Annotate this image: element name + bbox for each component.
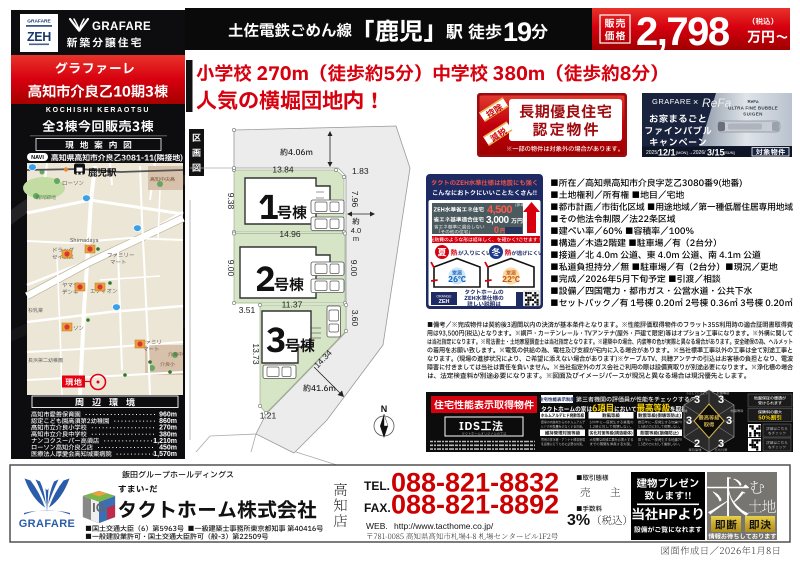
svg-text:1,570m: 1,570m xyxy=(153,451,177,458)
svg-text:[SUN]: [SUN] xyxy=(724,150,735,155)
svg-text:14.96: 14.96 xyxy=(279,229,301,239)
svg-text:IG: IG xyxy=(92,500,106,515)
svg-text:GRAFARE: GRAFARE xyxy=(27,19,51,25)
svg-text:http://www.tacthome.co.jp/: http://www.tacthome.co.jp/ xyxy=(394,521,494,531)
svg-text:9.00: 9.00 xyxy=(226,260,236,277)
svg-text:13.84: 13.84 xyxy=(272,165,294,175)
svg-text:13.73: 13.73 xyxy=(251,343,261,365)
svg-text:NAVI: NAVI xyxy=(31,155,44,161)
svg-text:KOCHISHI KERAOTSU: KOCHISHI KERAOTSU xyxy=(46,107,150,114)
svg-text:WEB.: WEB. xyxy=(366,521,388,531)
svg-text:3: 3 xyxy=(694,394,700,406)
svg-text:GRAFARE: GRAFARE xyxy=(92,21,151,33)
svg-text:ReFa: ReFa xyxy=(747,99,759,104)
svg-text:11.37: 11.37 xyxy=(282,300,303,310)
svg-text:3.60: 3.60 xyxy=(350,310,360,327)
svg-text:ULTRA FINE BUBBLE: ULTRA FINE BUBBLE xyxy=(728,106,778,111)
svg-text:GRAFARE: GRAFARE xyxy=(652,97,691,106)
svg-text:[MON]: [MON] xyxy=(676,150,688,155)
svg-text:SUIGEN: SUIGEN xyxy=(743,112,763,117)
svg-text:3: 3 xyxy=(686,415,692,427)
svg-text:2,798: 2,798 xyxy=(636,10,730,54)
svg-text:3/15: 3/15 xyxy=(707,148,725,158)
svg-text:12/1: 12/1 xyxy=(658,148,676,158)
svg-text:m: m xyxy=(353,234,359,243)
svg-text:0: 0 xyxy=(494,225,499,235)
svg-text:×: × xyxy=(693,97,698,107)
svg-text:3: 3 xyxy=(726,415,732,427)
svg-text:→2026/: →2026/ xyxy=(688,150,706,156)
svg-text:GRAFARE: GRAFARE xyxy=(19,518,76,530)
svg-text:3.51: 3.51 xyxy=(239,305,256,315)
svg-text:088-821-8892: 088-821-8892 xyxy=(391,490,559,520)
svg-text:1.83: 1.83 xyxy=(352,166,369,176)
svg-text:3: 3 xyxy=(718,394,724,406)
svg-text:ZEH: ZEH xyxy=(439,299,450,305)
svg-text:1.21: 1.21 xyxy=(260,410,277,420)
svg-text:ZEH: ZEH xyxy=(27,30,51,44)
svg-text:2: 2 xyxy=(694,438,700,450)
svg-text:N: N xyxy=(381,404,388,414)
svg-text:19: 19 xyxy=(503,17,532,47)
svg-text:FAX.: FAX. xyxy=(364,501,391,515)
svg-text:3%: 3% xyxy=(567,512,590,529)
svg-text:3: 3 xyxy=(718,438,724,450)
svg-text:7.96: 7.96 xyxy=(350,191,360,208)
svg-text:ORANGE: ORANGE xyxy=(436,295,452,299)
svg-text:9.38: 9.38 xyxy=(226,193,236,210)
svg-text:9.00: 9.00 xyxy=(349,260,359,277)
svg-text:TEL.: TEL. xyxy=(364,479,390,493)
